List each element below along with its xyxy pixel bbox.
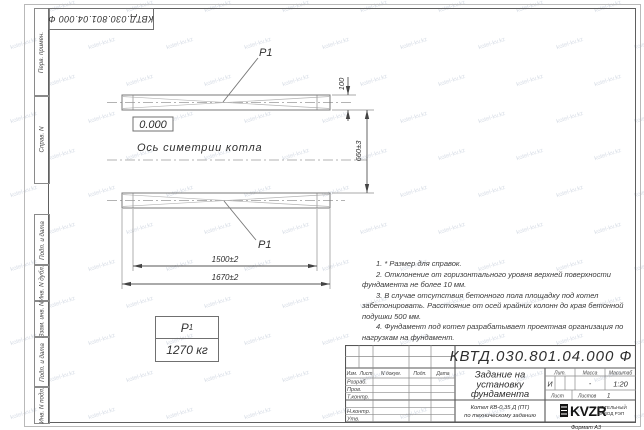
list-row: Лист Листов 1: [550, 394, 610, 400]
masshtab-label: Масштаб: [609, 371, 633, 377]
note-4: 4. Фундамент под котел разрабатывает про…: [362, 322, 628, 343]
drawing-sheet: kotel-kv.kzkotel-kv.kzkotel-kv.kzkotel-k…: [0, 0, 644, 430]
lit-massa-masshtab-headers: Лит. Масса Масштаб: [553, 371, 632, 377]
doc-number: КВТД.030.801.04.000 Ф: [450, 348, 633, 365]
technical-notes: 1. * Размер для справок. 2. Отклонение о…: [362, 259, 628, 343]
format-label: Формат А3: [571, 425, 602, 430]
row-utv: Утв.: [346, 416, 360, 422]
title-block: КВТД.030.801.04.000 Ф Изм. Лист N докум.…: [345, 345, 636, 430]
row-razrab: Разраб.: [347, 380, 367, 386]
massa-value: -: [589, 381, 592, 388]
beam-mark-bottom: P1: [258, 239, 271, 251]
mass-mark-letter: P: [181, 321, 189, 335]
org-name-line-2: ЗАВОД РЭП: [598, 411, 624, 416]
dim-1500: 1500±2: [212, 255, 239, 264]
elevation-value: 0.000: [139, 119, 167, 131]
row-nkontr: Н.контр.: [347, 409, 370, 415]
axis-label: Ось симетрии котла: [137, 142, 262, 154]
list-label: Лист: [550, 394, 564, 400]
signature-rows: Разраб. Пров. Т.контр. Н.контр. Утв.: [346, 380, 370, 423]
note-2: 2. Отклонение от горизонтального уровня …: [362, 270, 628, 291]
lit-value: И: [547, 382, 553, 389]
col-ndokum: N докум.: [381, 371, 401, 377]
massa-label: Масса: [583, 371, 598, 377]
listov-value: 1: [607, 394, 610, 400]
kvzr-logo: KVZR КОТЕЛЬНЫЙ ЗАВОД РЭП: [560, 403, 627, 419]
lit-label: Лит.: [553, 371, 566, 377]
org-name-line-1: КОТЕЛЬНЫЙ: [598, 403, 627, 410]
col-data: Дата: [435, 371, 449, 377]
col-podp: Подп.: [413, 371, 426, 377]
mass-table-value: 1270 кг: [156, 339, 218, 360]
lit-massa-masshtab-values: И - 1:20: [547, 380, 628, 389]
mass-table: P1 1270 кг: [155, 316, 219, 362]
revision-header: Изм. Лист N докум. Подп. Дата: [347, 371, 450, 377]
beam-mark-top: P1: [259, 47, 272, 59]
note-3: 3. В случае отсутствия бетонного пола пл…: [362, 291, 628, 323]
title-line-3: фундамента: [471, 389, 529, 400]
mass-mark-index: 1: [189, 323, 193, 332]
subtitle-line-2: по техническому заданию: [464, 413, 536, 419]
dim-660: 660±3: [354, 140, 363, 162]
masshtab-value: 1:20: [613, 380, 628, 389]
subtitle-line-1: Котел КВ-0,35 Д (ПТ): [471, 405, 530, 411]
row-tkontr: Т.контр.: [347, 394, 369, 400]
col-list: Лист: [359, 371, 373, 377]
document-subtitle: Котел КВ-0,35 Д (ПТ) по техническому зад…: [464, 405, 536, 419]
note-1: 1. * Размер для справок.: [362, 259, 628, 270]
document-title: Задание на установку фундамента: [471, 370, 529, 401]
dim-1670: 1670±2: [212, 273, 239, 282]
dim-100: 100: [337, 77, 346, 90]
row-prov: Пров.: [347, 387, 362, 393]
listov-label: Листов: [577, 394, 597, 400]
col-izm: Изм.: [347, 371, 358, 377]
mass-table-mark: P1: [156, 317, 218, 339]
